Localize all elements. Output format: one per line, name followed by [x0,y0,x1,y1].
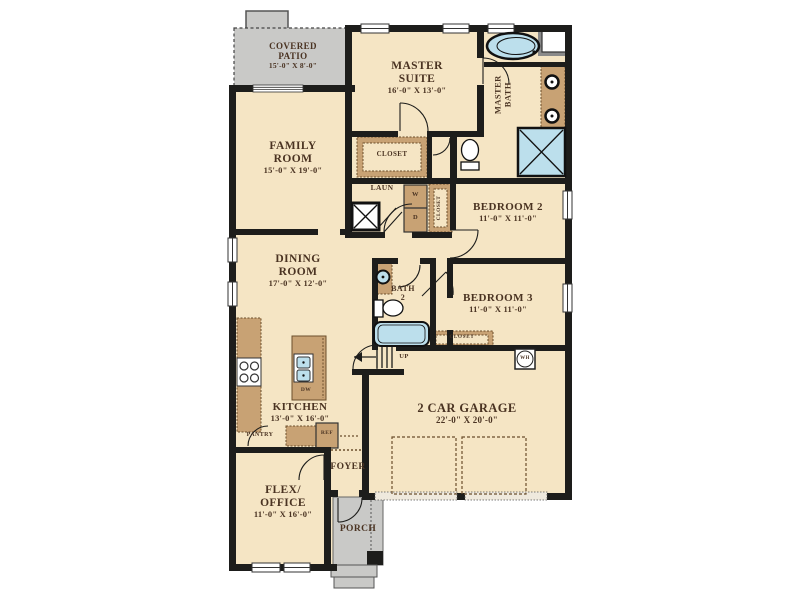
room-label-foyer: FOYER [323,462,373,473]
room-name-line: FAMILY [242,140,344,153]
room-name-line: BATH [384,284,422,293]
room-dims: 15'-0" X 19'-0" [242,166,344,176]
room-name-line: BATH [503,66,513,124]
room-label-master-bath: MASTER BATH [493,66,512,124]
refrigerator-label: REF [316,430,338,436]
room-label-bedroom3-closet: CLOSET [436,335,488,341]
room-name-line: COVERED [240,41,346,51]
room-dims: 15'-0" X 8'-0" [240,62,346,71]
room-label-family-room: FAMILY ROOM 15'-0" X 19'-0" [242,140,344,176]
island-sink [294,354,313,382]
porch-area [331,497,383,588]
room-label-bedroom-3: BEDROOM 3 11'-0" X 11'-0" [442,292,554,314]
room-name-line: BEDROOM 3 [442,292,554,305]
room-label-master-closet: CLOSET [360,151,424,159]
room-dims: 11'-0" X 11'-0" [452,214,564,224]
master-bathtub [487,33,539,59]
room-label-laundry: LAUN [360,184,404,193]
room-name-line: 2 [384,293,422,302]
bath2-tub [374,322,429,346]
room-label-dining-room: DINING ROOM 17'-0" X 12'-0" [247,253,349,289]
room-dims: 16'-0" X 13'-0" [366,86,468,96]
room-label-porch: PORCH [332,524,384,535]
room-dims: 22'-0" X 20'-0" [406,415,528,425]
room-name-line: PATIO [240,51,346,61]
chimney [246,11,288,29]
room-name-line: MASTER [366,60,468,73]
room-dims: 17'-0" X 12'-0" [247,279,349,289]
master-shower [518,128,565,176]
floorplan-page: COVERED PATIO 15'-0" X 8'-0" MASTER SUIT… [0,0,800,600]
room-name-line: DINING [247,253,349,266]
room-name-line: KITCHEN [249,401,351,414]
bath2-toilet [374,300,403,317]
room-label-bath-2: BATH 2 [384,284,422,302]
water-heater-label: WH [515,356,535,362]
up-label: UP [393,353,415,360]
bath2-sink [377,271,390,284]
room-label-flex-office: FLEX/ OFFICE 11'-0" X 16'-0" [237,484,329,520]
master-toilet [461,140,479,171]
room-label-covered-patio: COVERED PATIO 15'-0" X 8'-0" [240,41,346,70]
kitchen-stove [237,358,261,386]
room-label-hall-closet: CLOSET [436,186,446,230]
room-dims: 11'-0" X 11'-0" [442,305,554,315]
room-label-master-suite: MASTER SUITE 16'-0" X 13'-0" [366,60,468,96]
pantry-label: PANTRY [235,432,285,439]
room-name-line: BEDROOM 2 [452,201,564,214]
room-dims: 11'-0" X 16'-0" [237,510,329,520]
patio-slider-door [253,85,303,92]
dishwasher-label: DW [296,387,316,393]
dryer-label: D [404,214,427,221]
room-label-kitchen: KITCHEN 13'-0" X 16'-0" [249,401,351,423]
utility-box [352,203,379,230]
room-name-line: 2 CAR GARAGE [406,401,528,415]
room-dims: 13'-0" X 16'-0" [249,414,351,424]
room-name-line: FLEX/ [237,484,329,497]
washer-label: W [404,191,427,198]
room-label-garage: 2 CAR GARAGE 22'-0" X 20'-0" [406,401,528,426]
room-label-bedroom-2: BEDROOM 2 11'-0" X 11'-0" [452,201,564,223]
